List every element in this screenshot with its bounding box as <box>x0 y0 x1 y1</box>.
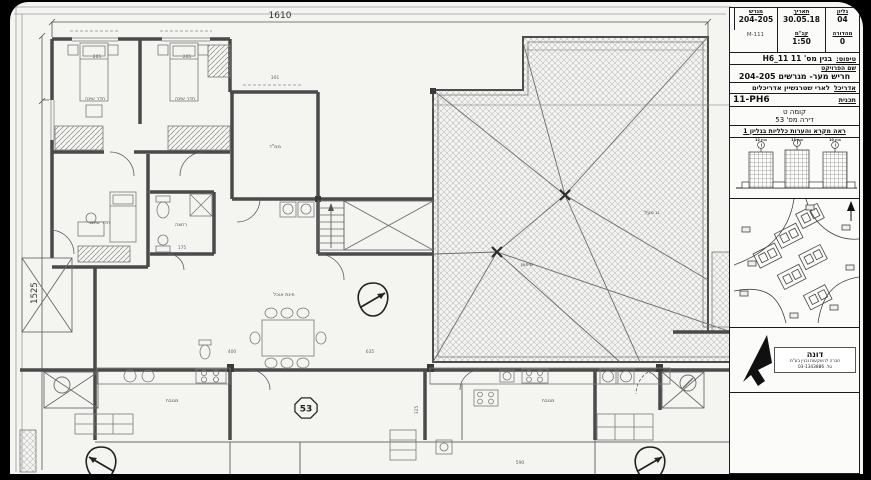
shaft-left <box>44 372 98 408</box>
svg-text:חדר שינה: חדר שינה <box>85 96 105 102</box>
roof-area: גג מעל שיפוע <box>433 37 732 362</box>
screenshot-stage: 1610 1525 גג מעל שיפוע <box>0 0 871 480</box>
dining-table <box>250 308 326 368</box>
dimension-left-label: 1525 <box>30 282 40 304</box>
building-type-value: בנין מס' 11 11_H6 <box>763 54 833 63</box>
svg-text:205: 205 <box>93 54 102 60</box>
sheet-number-value: 04 <box>828 15 857 24</box>
title-block-empty <box>730 393 859 473</box>
stair-strip <box>318 201 344 250</box>
closet <box>168 126 230 150</box>
title-block: גליון 04 תאריך 30.05.18 מגרש 204-205 מהד… <box>729 7 860 474</box>
svg-text:635: 635 <box>366 349 375 355</box>
architect-label: אדריכל <box>834 84 856 92</box>
project-section: שם הפרויקט חריש מער- מגרשים 204-205 <box>730 65 859 83</box>
bed <box>158 43 208 101</box>
architect-row: אדריכל לארי שטרנשיין אדריכלים <box>730 83 859 94</box>
date-cell: תאריך 30.05.18 <box>777 8 825 30</box>
section-marker <box>358 283 388 316</box>
section-marker <box>635 447 665 474</box>
tower-label: בנין 10 <box>829 138 841 142</box>
windows <box>49 31 303 140</box>
svg-text:53: 53 <box>300 405 313 415</box>
plan-id-value: 11-PH6 <box>733 95 770 105</box>
arrow-logo-icon <box>733 332 773 388</box>
toilet <box>199 340 211 359</box>
svg-text:205: 205 <box>183 54 192 60</box>
legend-note: ראה מקרא והערות כלליות בגליון 1 <box>730 126 859 138</box>
dimension-top <box>49 19 711 37</box>
bed <box>78 192 136 242</box>
floor-value: קומה ט <box>733 108 856 116</box>
north-arrow <box>847 201 855 221</box>
svg-text:325: 325 <box>414 406 420 415</box>
svg-text:חדר שינה: חדר שינה <box>90 220 110 226</box>
edition-cell: מהדורה 0 <box>825 30 859 52</box>
closet <box>78 246 130 262</box>
apartment-number-badge: 53 <box>295 398 317 418</box>
project-name: חריש מער- מגרשים 204-205 <box>733 72 856 81</box>
floor-plan: 1610 1525 גג מעל שיפוע <box>10 2 732 474</box>
sheet-number-cell: גליון 04 <box>825 8 859 30</box>
building-type-label: טיפוס: <box>836 55 856 63</box>
roof-note-label: גג מעל <box>644 210 659 216</box>
shaft-right <box>662 372 704 408</box>
scale-cell: קנ"מ 1:50 <box>777 30 825 52</box>
svg-text:מטבח: מטבח <box>542 398 555 404</box>
svg-text:חדר שינה: חדר שינה <box>175 96 195 102</box>
file-value: M-111 <box>736 31 775 40</box>
svg-text:פינת אוכל: פינת אוכל <box>273 292 294 298</box>
file-cell: M-111 <box>734 30 777 52</box>
title-info-table: גליון 04 תאריך 30.05.18 מגרש 204-205 מהד… <box>730 8 859 53</box>
architect-name: לארי שטרנשיין אדריכלים <box>752 84 830 92</box>
edition-value: 0 <box>828 37 857 46</box>
site-plan <box>734 199 859 323</box>
drawing-sheet: 1610 1525 גג מעל שיפוע <box>10 2 863 474</box>
walls-thin <box>95 384 732 474</box>
towers-elevation: בנין 12 בנין 11 בנין 10 <box>734 138 859 194</box>
developer-line2: טל. 03-1343886 <box>779 365 851 371</box>
svg-text:590: 590 <box>516 460 525 466</box>
dimension-left <box>39 33 50 470</box>
shaft-box <box>390 430 416 460</box>
svg-text:ממ"ד: ממ"ד <box>269 144 281 150</box>
siteplan-figure <box>730 199 859 328</box>
left-screen-hatch <box>20 430 36 472</box>
apartment-value: דירה מס' 53 <box>733 116 856 124</box>
developer-logo-section: דונה חברה להשקעות ובנין בע"מ טל. 03-1343… <box>730 328 859 393</box>
scale-value: 1:50 <box>780 37 823 46</box>
plot-value: 204-205 <box>737 15 775 24</box>
date-value: 30.05.18 <box>780 15 823 24</box>
tower-label: בנין 11 <box>791 138 803 142</box>
dimension-top-label: 1610 <box>269 11 292 21</box>
developer-logo-box: דונה חברה להשקעות ובנין בע"מ טל. 03-1343… <box>774 347 856 373</box>
building-type-row: טיפוס: בנין מס' 11 11_H6 <box>730 53 859 65</box>
svg-text:301: 301 <box>271 75 280 81</box>
floor-apartment-section: קומה ט דירה מס' 53 <box>730 107 859 126</box>
developer-name: דונה <box>779 350 851 359</box>
plot-cell: מגרש 204-205 <box>734 8 777 30</box>
plan-id-label: תכנית <box>839 96 856 104</box>
tower-label: בנין 12 <box>755 138 767 142</box>
washing-machines <box>280 202 314 217</box>
closet <box>55 126 103 150</box>
svg-text:מטבח: מטבח <box>166 398 179 404</box>
kitchen-right <box>430 368 670 454</box>
terrace-x <box>344 201 433 250</box>
svg-text:400: 400 <box>228 349 237 355</box>
section-marker <box>86 447 116 474</box>
elevation-figure: בנין 12 בנין 11 בנין 10 <box>730 138 859 199</box>
roof-slope-label: שיפוע <box>521 262 534 268</box>
svg-text:רחצה: רחצה <box>175 222 187 228</box>
svg-text:175: 175 <box>178 245 187 251</box>
closet <box>208 45 230 77</box>
plan-id-row: תכנית 11-PH6 <box>730 94 859 107</box>
